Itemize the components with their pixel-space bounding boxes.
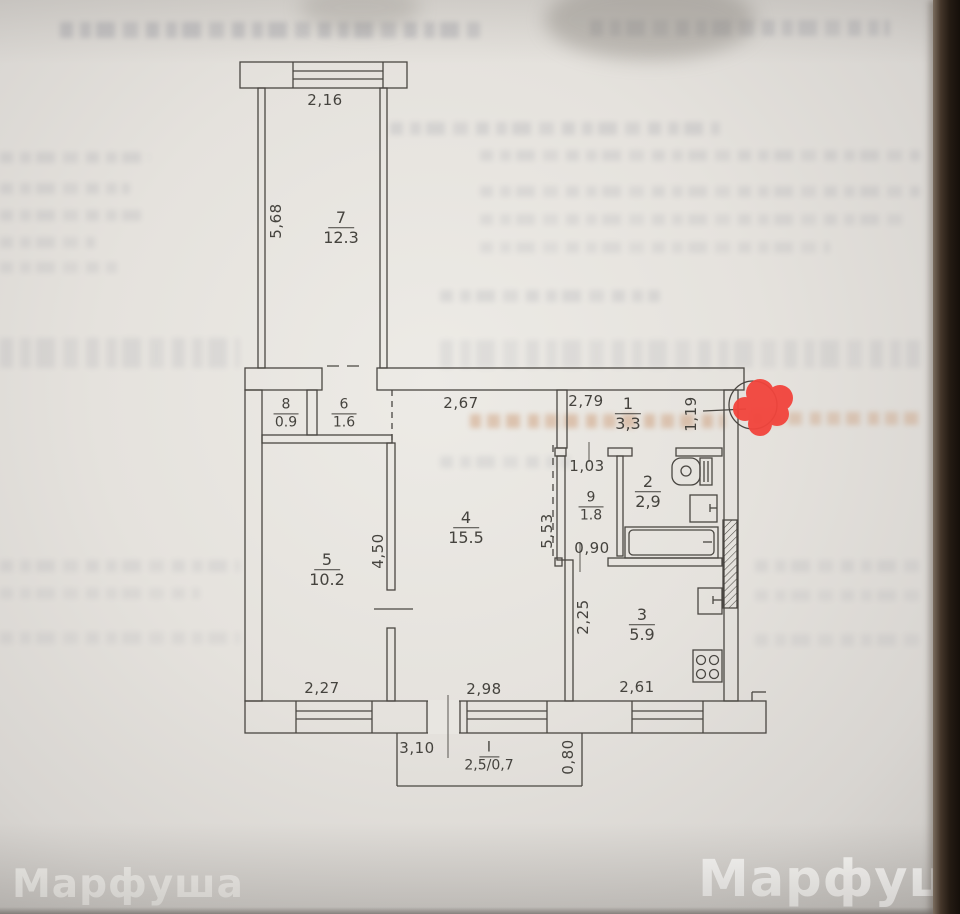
balcony-top (240, 62, 407, 88)
room-area: 12.3 (323, 229, 359, 247)
dim-1-19: 1,19 (682, 396, 700, 431)
room-label-4: 4 15.5 (448, 509, 484, 547)
top-wall-right (377, 368, 744, 390)
room-label-5: 5 10.2 (309, 551, 345, 589)
dim-2-79: 2,79 (568, 392, 603, 410)
room-label-9: 9 1.8 (579, 490, 604, 523)
dim-5-53: 5,53 (538, 513, 556, 548)
room-label-6: 6 1.6 (332, 397, 357, 430)
floor-plan-drawing (0, 0, 960, 914)
room-number: 9 (579, 490, 604, 507)
room-area: 2,5/0,7 (464, 758, 513, 774)
bathtub-icon (625, 527, 718, 558)
closet-partition (307, 390, 317, 435)
kitchen-sink-icon (698, 588, 722, 614)
duct-hatch (723, 520, 737, 608)
room-number: 3 (629, 606, 655, 625)
room-label-3: 3 5.9 (629, 606, 655, 644)
room5-right-wall (387, 443, 395, 590)
dim-4-50: 4,50 (369, 533, 387, 568)
room-number: 5 (314, 551, 340, 570)
kitchen-top-wall (608, 558, 722, 566)
room-label-7: 7 12.3 (323, 209, 359, 247)
room5-right-wall (387, 628, 395, 701)
room-area: 1.8 (580, 508, 602, 524)
dim-2-27: 2,27 (304, 679, 339, 697)
bottom-wall (245, 701, 766, 733)
room-number: 4 (453, 509, 479, 528)
room-area: 10.2 (309, 571, 345, 589)
bathroom-sink-icon (672, 458, 712, 485)
photo-edge-bottom (0, 907, 960, 914)
watermark-right: Марфуша (698, 850, 960, 909)
room-number: 8 (274, 397, 299, 414)
dim-5-68: 5,68 (267, 203, 285, 238)
washbasin-icon (690, 495, 717, 522)
dim-0-80: 0,80 (559, 739, 577, 774)
dim-2-61: 2,61 (619, 678, 654, 696)
window-room4 (467, 701, 547, 733)
room1-bottom-wall (608, 448, 632, 456)
dim-2-67: 2,67 (443, 394, 478, 412)
room-area: 3,3 (615, 415, 640, 433)
photo-edge-dark-strip (933, 0, 960, 914)
room7-right-wall (380, 88, 387, 368)
closet-bottom-wall (262, 435, 392, 443)
dim-1-03: 1,03 (569, 457, 604, 475)
watermark-left: Марфуша (12, 862, 244, 907)
room-area: 15.5 (448, 529, 484, 547)
room-area: 0.9 (275, 415, 297, 431)
red-marker-blob (733, 379, 793, 436)
room1-bottom-wall (676, 448, 722, 456)
room-label-2: 2 2,9 (635, 473, 661, 511)
dim-3-10: 3,10 (399, 739, 434, 757)
room-number: 7 (328, 209, 354, 228)
top-wall-left (245, 368, 322, 390)
kitchen-top-wall (555, 558, 562, 566)
room-area: 5.9 (629, 626, 654, 644)
window-room5 (296, 701, 372, 733)
room1-bottom-wall (555, 448, 566, 456)
room-area: 2,9 (635, 493, 660, 511)
room-label-8: 8 0.9 (274, 397, 299, 430)
kitchen-left-wall (565, 560, 573, 701)
left-wall (245, 390, 262, 701)
room-label-1: 1 3,3 (615, 395, 641, 433)
balcony-door-gap (428, 700, 459, 734)
photographed-floor-plan-page: 7 12.3 8 0.9 6 1.6 1 3,3 9 1.8 2 2,9 4 1… (0, 0, 960, 914)
room1-left-wall (557, 390, 567, 448)
window-kitchen (632, 701, 703, 733)
hall-left-wall (557, 456, 565, 560)
room-number: 1 (615, 395, 641, 414)
dim-0-90: 0,90 (574, 539, 609, 557)
room9-bathroom-wall (617, 456, 623, 556)
dim-2-16: 2,16 (307, 91, 342, 109)
room-number: 2 (635, 473, 661, 492)
dim-2-25: 2,25 (574, 599, 592, 634)
room-number: I (479, 740, 499, 757)
dim-2-98: 2,98 (466, 680, 501, 698)
room-area: 1.6 (333, 415, 355, 431)
stove-icon (693, 650, 722, 682)
room7-left-wall (258, 88, 265, 368)
room-label-balcony: I 2,5/0,7 (464, 740, 513, 773)
room-number: 6 (332, 397, 357, 414)
